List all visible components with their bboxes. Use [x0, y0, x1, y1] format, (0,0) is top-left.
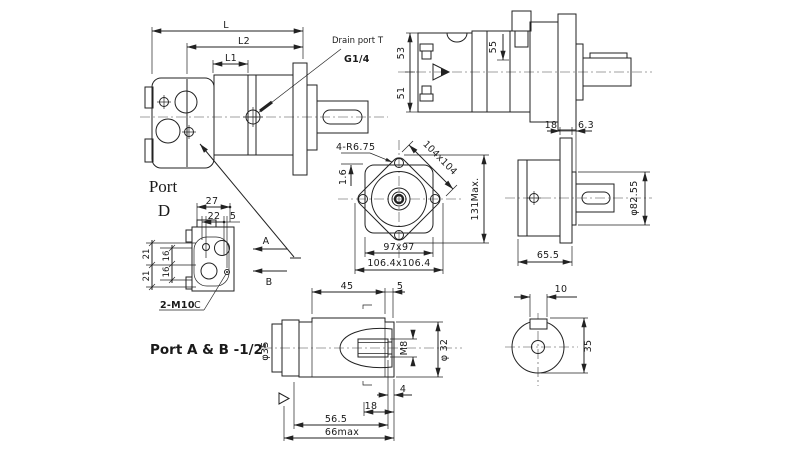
plug [515, 31, 528, 47]
drain-port-label: Drain port T [332, 36, 384, 46]
dim-66: 66max [325, 427, 359, 438]
technical-drawing: L L2 L1 Drain port T G1/4 5 [0, 0, 800, 450]
dim-35: 35 [583, 340, 594, 353]
arrow-b-label: B [266, 277, 273, 288]
dim-55: 55 [488, 41, 499, 54]
output-side-view: 18 6.3 φ82.55 65.5 [505, 120, 652, 266]
flange-plate [560, 138, 572, 243]
pilot-boss [572, 172, 576, 225]
datum-label: C [194, 300, 201, 311]
dim-m8: M8 [399, 341, 410, 356]
dim-51: 51 [396, 87, 407, 100]
flange-dimensions: 4-R6.75 1.6 104x104 131Max. 97x97 106.4x… [336, 139, 489, 274]
bolt-note: 2-M10 [160, 300, 195, 311]
port-title: Port [149, 177, 178, 196]
port-circle [156, 119, 180, 143]
mounting-flange [293, 63, 307, 175]
key [590, 53, 627, 58]
dim-flange: 18 [545, 120, 558, 131]
port-d-view: Port D 27 22 5 [142, 144, 301, 311]
dim-4: 4 [400, 384, 406, 395]
port-hole [201, 263, 217, 279]
dim-21a: 21 [142, 249, 152, 260]
dim-16b: 16 [162, 267, 172, 278]
dim-d32: φ 32 [439, 339, 450, 362]
port-dimensions: 27 22 5 21 21 16 16 2-M10 C [142, 196, 240, 311]
dim-L2: L2 [238, 36, 250, 47]
dim-18: 18 [365, 401, 378, 412]
motor-body [214, 75, 293, 155]
port-circle [175, 91, 197, 113]
dim-L1: L1 [225, 53, 237, 64]
dim-53: 53 [396, 47, 407, 60]
main-dimensions: L L2 L1 Drain port T G1/4 [152, 20, 384, 74]
dim-height: 131Max. [470, 178, 481, 221]
dim-length: 65.5 [537, 250, 559, 261]
key-section-view: 10 35 [505, 284, 594, 386]
dim-diag: 104x104 [420, 139, 459, 178]
bolt-note: 4-R6.75 [336, 142, 375, 153]
rear-dimensions: 53 51 55 [396, 33, 509, 112]
port-title-d: D [158, 201, 170, 220]
datum-triangle [279, 393, 289, 404]
dim-22: 22 [208, 211, 221, 222]
dim-chamfer: 1.6 [338, 169, 349, 185]
bolt-tab [186, 230, 192, 242]
drain-thread-label: G1/4 [344, 54, 370, 65]
dim-pilot: φ82.55 [629, 180, 640, 215]
arrow-a-label: A [263, 236, 270, 247]
port-block [192, 227, 234, 291]
dim-16a: 16 [162, 251, 172, 262]
dim-5: 5 [230, 211, 236, 222]
dim-step: 6.3 [578, 120, 594, 131]
dim-27: 27 [206, 196, 219, 207]
drawing-canvas: L L2 L1 Drain port T G1/4 5 [0, 0, 800, 450]
top-fitting [512, 11, 531, 31]
dim-45: 45 [341, 281, 354, 292]
dim-565: 56.5 [325, 414, 347, 425]
dim-outer: 106.4x106.4 [367, 258, 430, 269]
dim-5: 5 [397, 281, 403, 292]
flange-front-view: 4-R6.75 1.6 104x104 131Max. 97x97 106.4x… [336, 139, 489, 274]
dim-21b: 21 [142, 271, 152, 282]
dim-square: 97x97 [383, 242, 414, 253]
shaft-body [299, 318, 394, 377]
dim-key-width: 10 [555, 284, 568, 295]
dim-d35: φ35 [260, 341, 271, 360]
port-size-note: Port A & B -1/2' [150, 342, 267, 358]
rear-side-view: 53 51 55 [396, 11, 652, 130]
shaft-dimensions: 45 5 φ35 M8 φ 32 4 18 56.5 66max [260, 281, 450, 441]
section-dimensions: 10 35 [514, 284, 594, 373]
dim-L: L [223, 20, 229, 31]
